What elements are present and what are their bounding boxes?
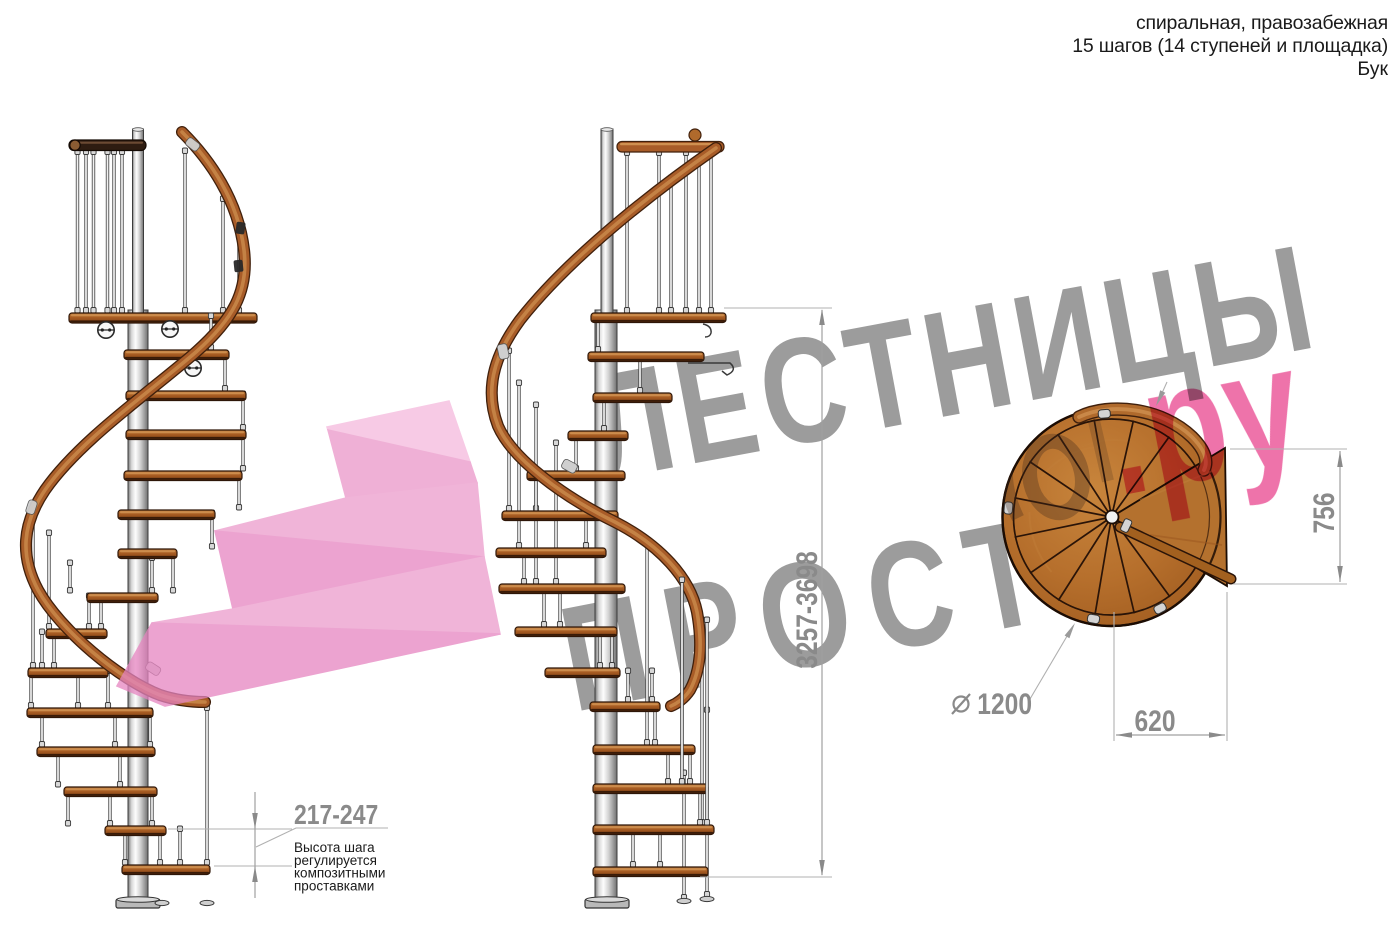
svg-text:756: 756 xyxy=(1307,492,1341,533)
svg-text:3257-3698: 3257-3698 xyxy=(790,551,824,669)
svg-text:217-247: 217-247 xyxy=(294,800,378,831)
svg-text:спиральная, правозабежная: спиральная, правозабежная xyxy=(1136,12,1388,34)
svg-text:1200: 1200 xyxy=(977,687,1032,721)
svg-text:проставками: проставками xyxy=(294,878,374,893)
svg-text:Бук: Бук xyxy=(1357,58,1388,80)
svg-text:620: 620 xyxy=(1134,704,1175,738)
svg-text:.ру: .ру xyxy=(1089,308,1318,532)
svg-text:15 шагов (14 ступеней и площад: 15 шагов (14 ступеней и площадка) xyxy=(1072,35,1388,57)
